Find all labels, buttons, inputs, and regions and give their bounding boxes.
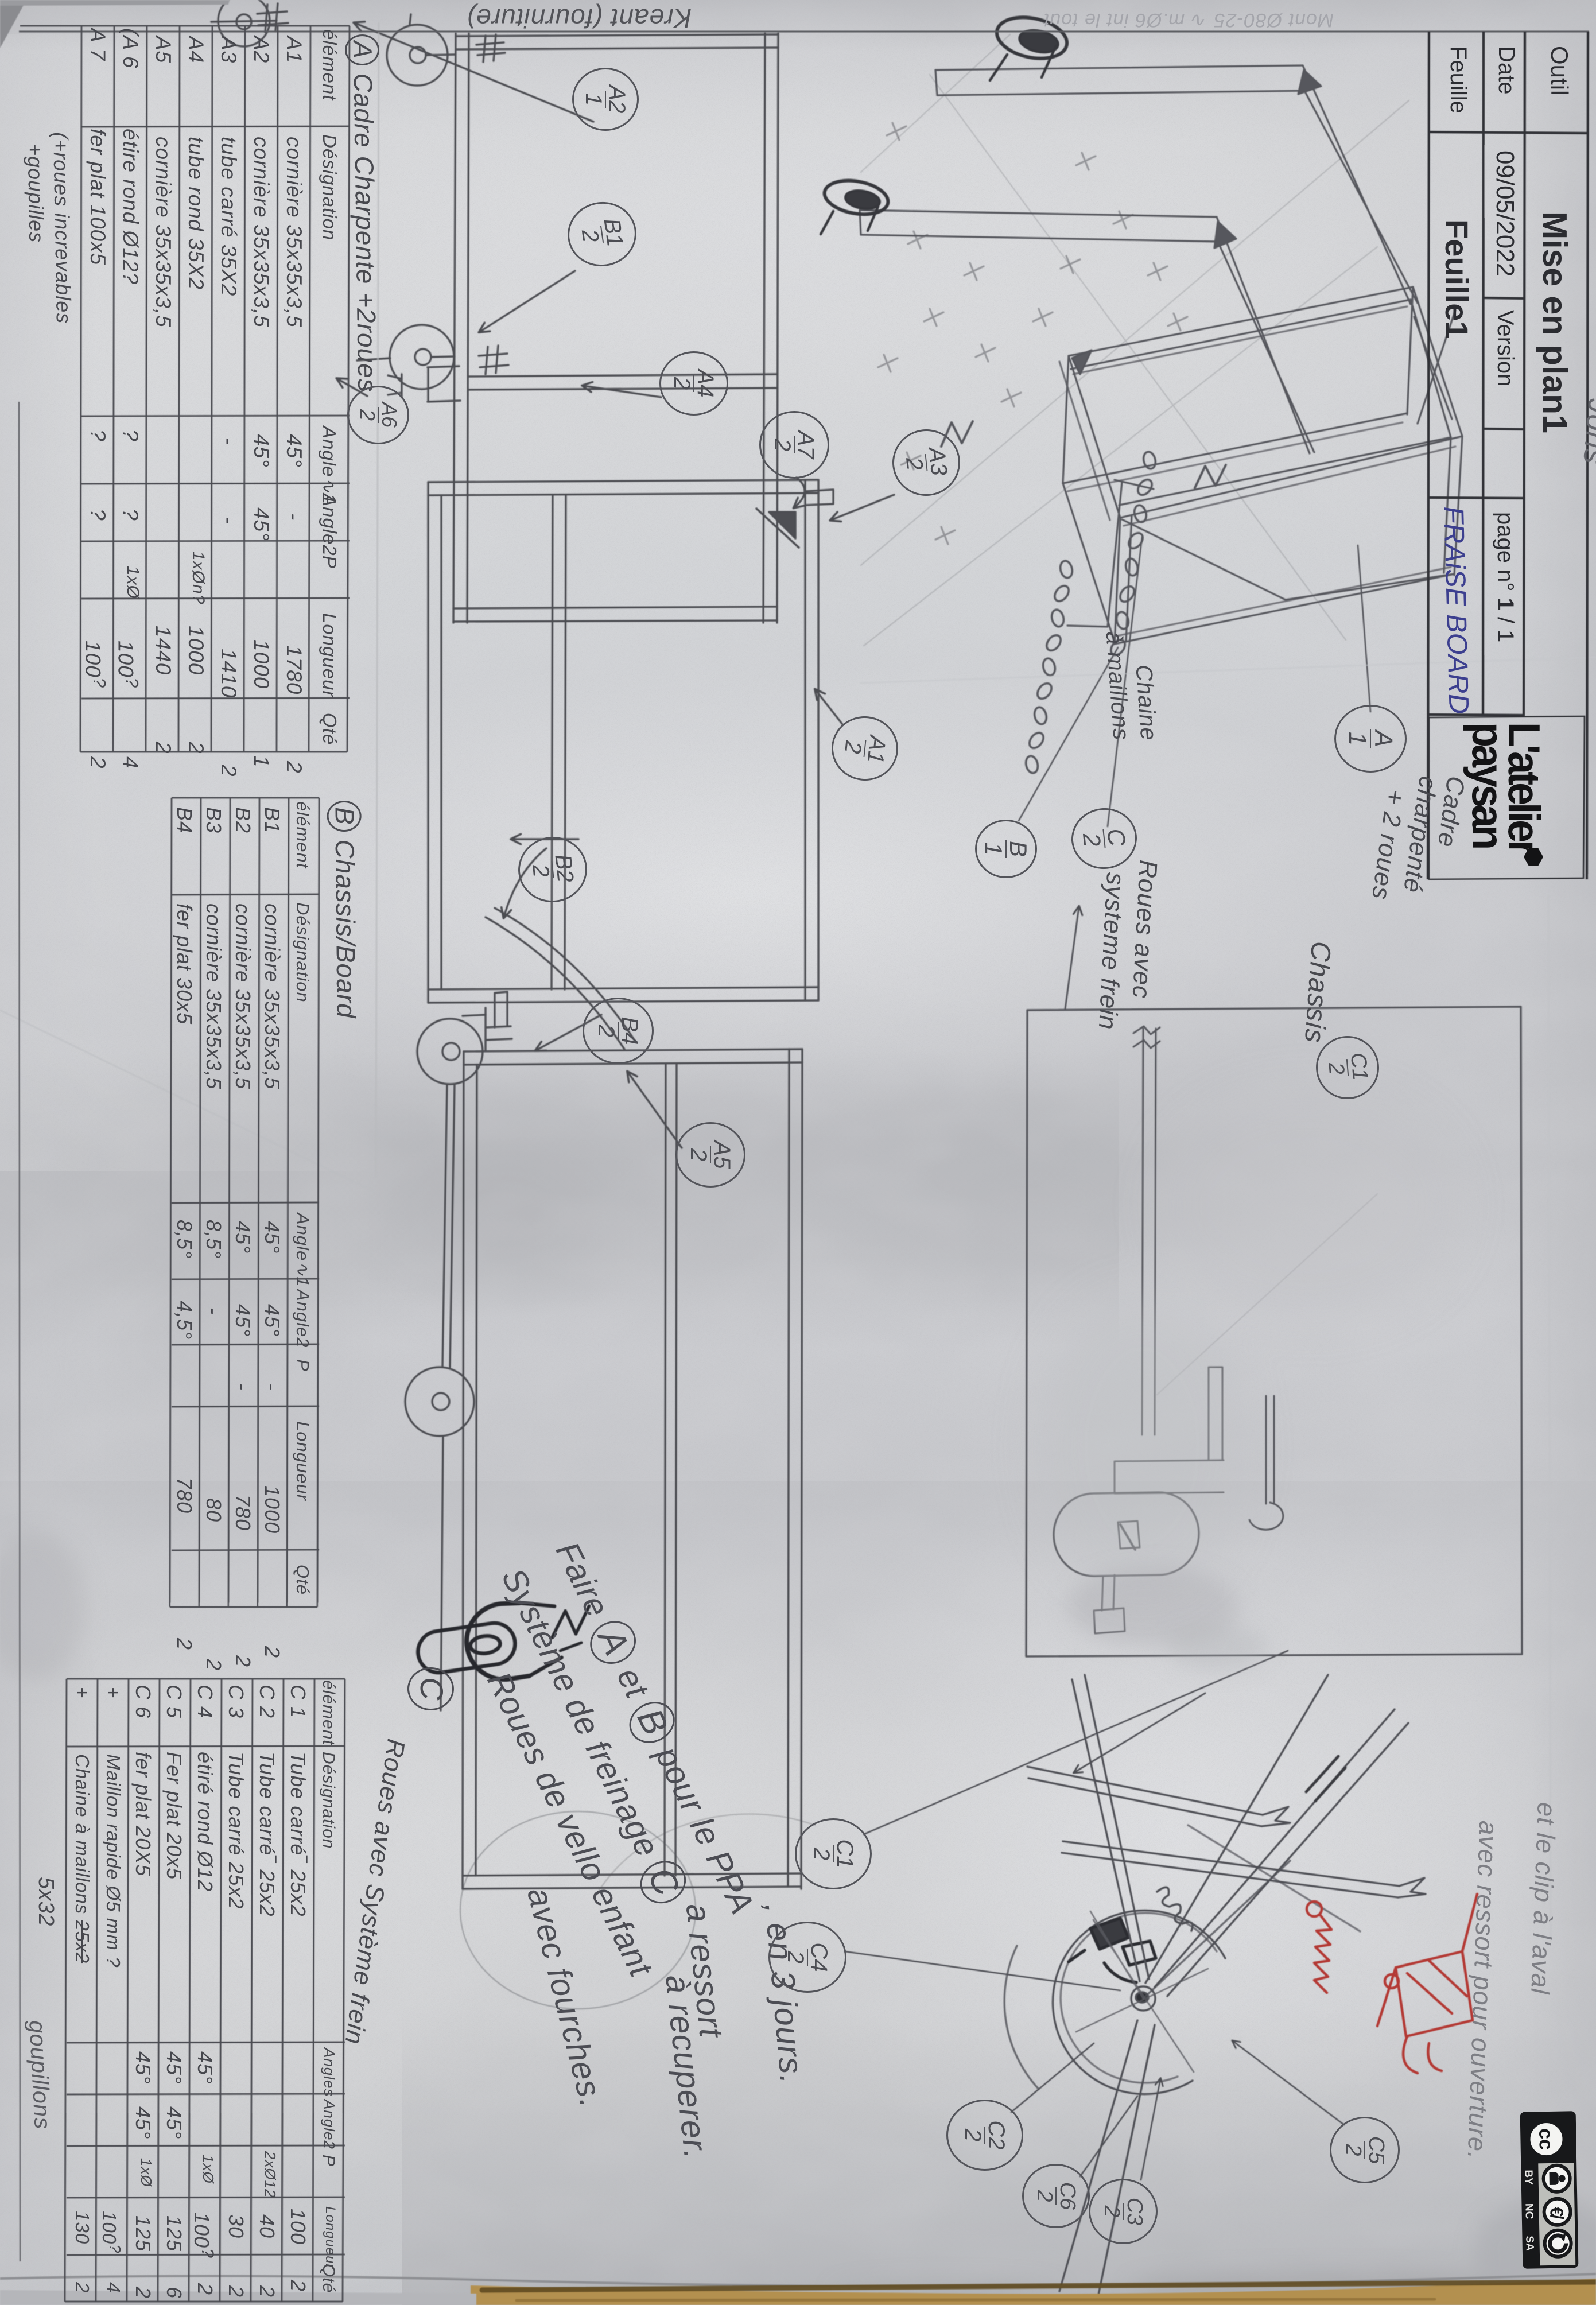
svg-text:BY: BY — [1522, 2170, 1534, 2185]
svg-text:NC: NC — [1523, 2203, 1535, 2219]
svg-text:SA: SA — [1523, 2236, 1535, 2251]
svg-text:cc: cc — [1535, 2128, 1557, 2150]
